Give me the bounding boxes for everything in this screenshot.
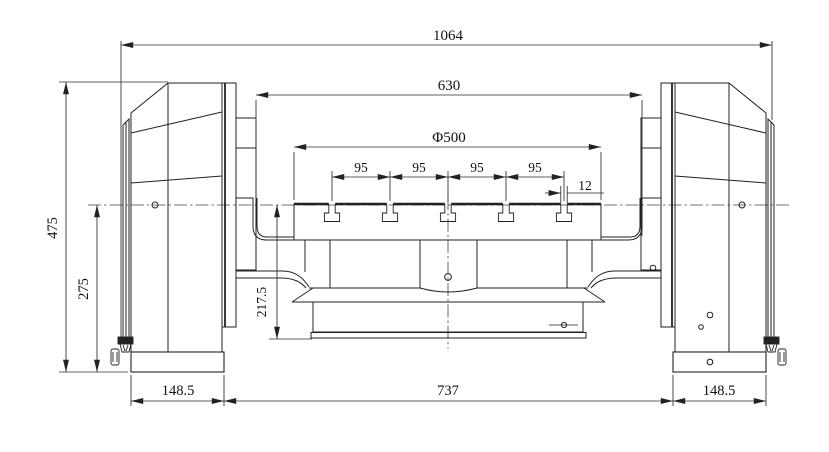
right-clamp-knob: [764, 337, 786, 365]
tilt-table: [294, 204, 601, 240]
left-side-cover-strip: [123, 119, 129, 338]
right-pedestal-body: [675, 83, 766, 352]
label-overall-height: 475: [45, 217, 61, 239]
label-slot-pitch-1: 95: [354, 160, 368, 175]
label-base-span: 737: [437, 383, 459, 399]
label-axis-height: 275: [76, 278, 92, 300]
drawing-canvas: 1064 630 Φ500 95 95 95 95 12 475 275 217…: [0, 0, 829, 452]
label-left-base: 148.5: [162, 383, 195, 399]
right-base-plate: [673, 352, 766, 372]
left-arm-link: [236, 271, 309, 288]
label-slot-pitch-2: 95: [412, 160, 426, 175]
left-clamp-knob: [111, 337, 133, 365]
label-slot-width: 12: [578, 178, 592, 193]
gearbox-hole-2: [699, 325, 704, 330]
left-pedestal: [123, 83, 256, 352]
t-slot: [382, 204, 397, 222]
t-slot: [556, 204, 571, 222]
right-pedestal: [641, 83, 774, 352]
bottom-rib: [311, 333, 586, 339]
right-arm-link: [588, 271, 661, 288]
gearbox-hole-1: [707, 312, 713, 318]
right-bearing-block: [641, 118, 661, 270]
drive-housing: [236, 240, 661, 338]
label-table-unit-height: 217.5: [254, 287, 269, 318]
right-side-cover-strip: [768, 119, 774, 338]
label-table-diameter: Φ500: [432, 130, 465, 146]
label-slot-pitch-4: 95: [528, 160, 542, 175]
right-base-hole: [707, 359, 713, 365]
t-slot: [498, 204, 513, 222]
label-overall-width: 1064: [433, 28, 464, 44]
left-pedestal-body: [131, 83, 222, 352]
dimension-lines: [66, 45, 772, 401]
center-pocket-curve: [420, 288, 477, 292]
label-slot-pitch-3: 95: [470, 160, 484, 175]
label-right-base: 148.5: [703, 383, 736, 399]
t-slot: [324, 204, 339, 222]
dimensions: [59, 41, 772, 406]
extension-lines: [59, 41, 772, 406]
base-plates: [131, 352, 766, 372]
label-inner-width: 630: [438, 78, 461, 94]
left-base-plate: [131, 352, 224, 372]
technical-drawing: 1064 630 Φ500 95 95 95 95 12 475 275 217…: [0, 0, 829, 452]
left-bearing-block: [236, 118, 256, 270]
dimension-labels: 1064 630 Φ500 95 95 95 95 12 475 275 217…: [45, 28, 735, 399]
